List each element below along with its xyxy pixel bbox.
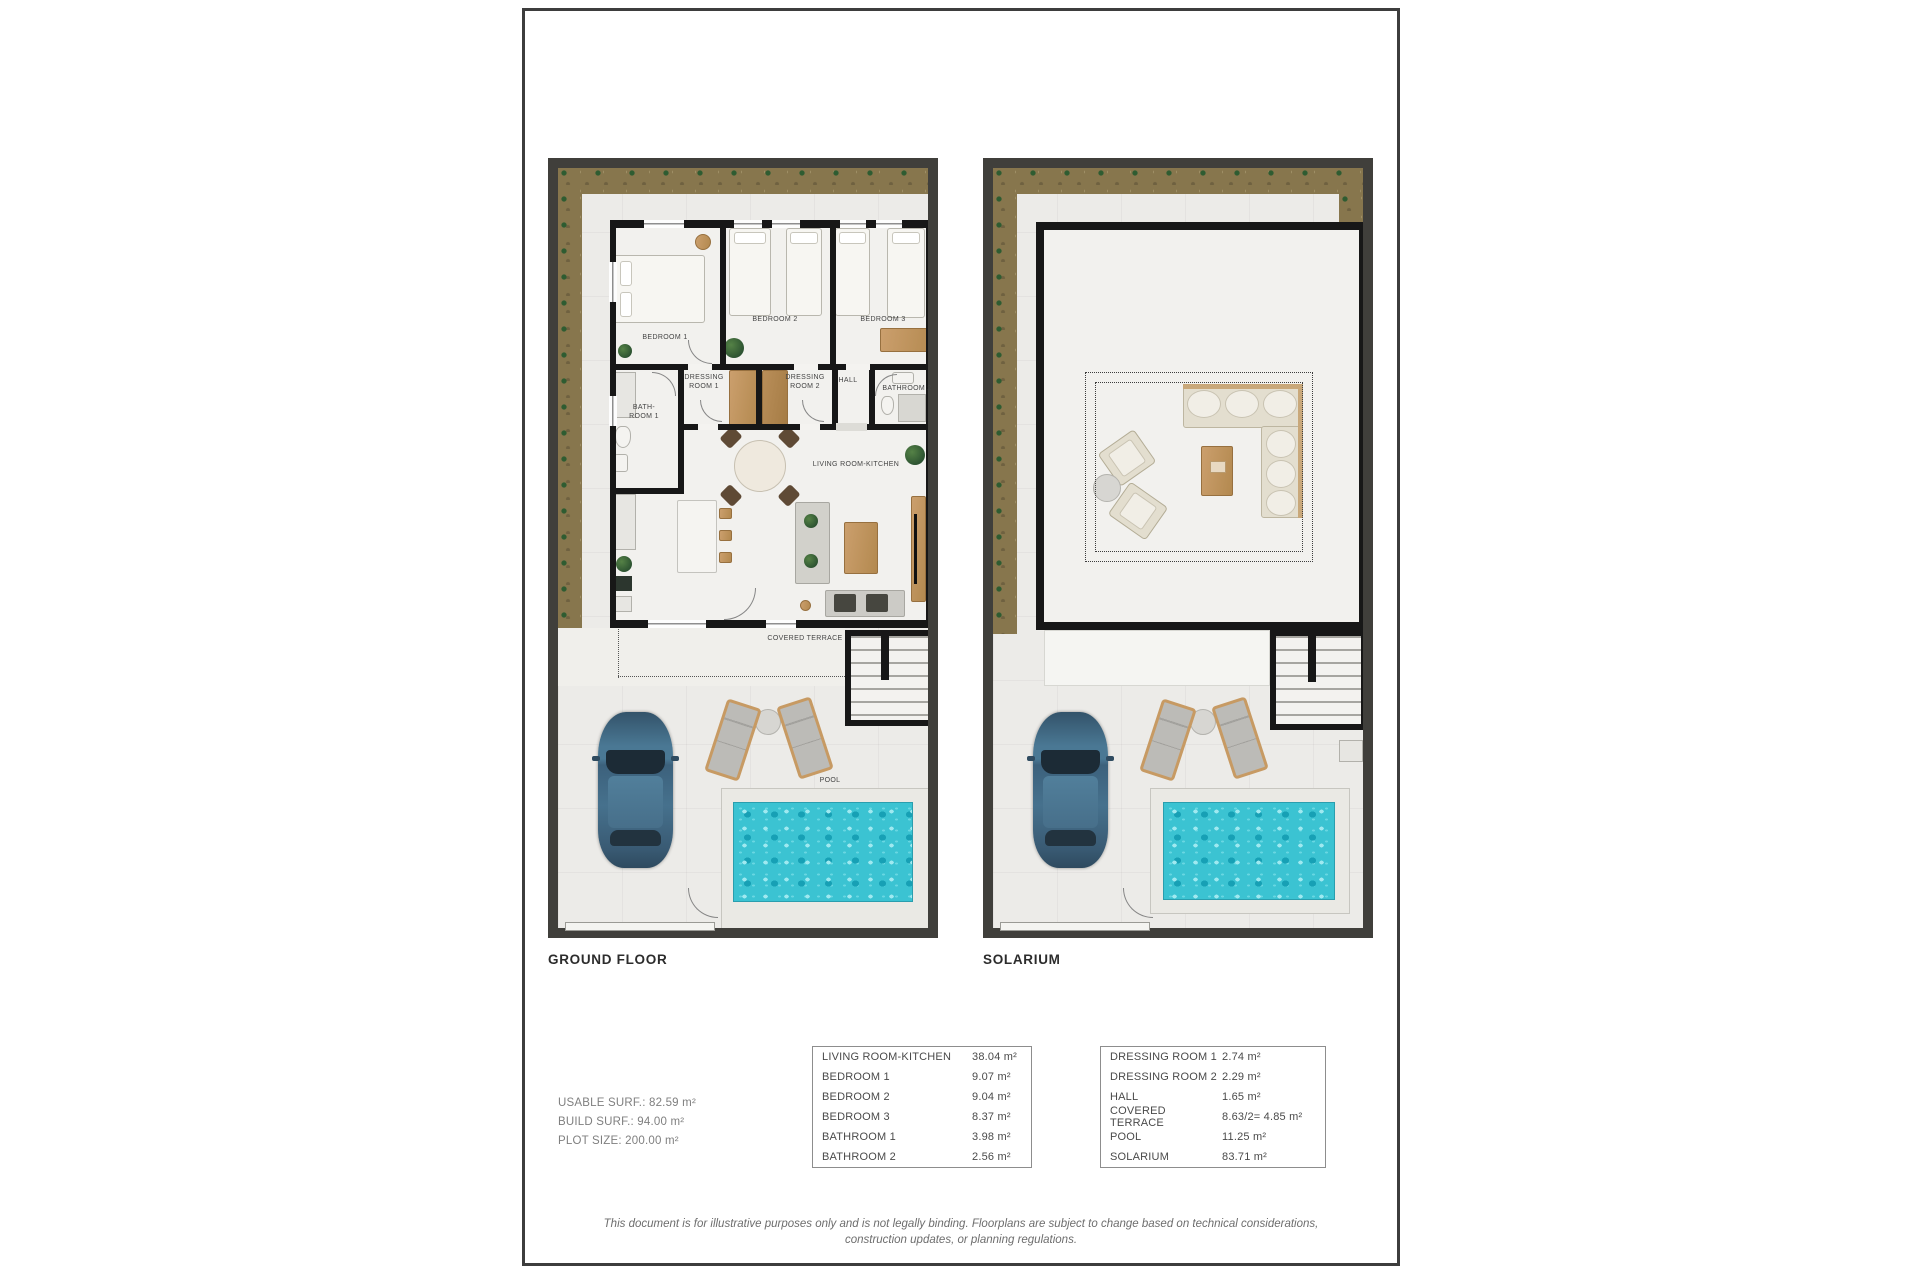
window [772,220,800,228]
pool [1163,802,1335,900]
row-value: 38.04 m² [972,1051,1017,1063]
wall [610,364,938,370]
row-value: 9.07 m² [972,1071,1011,1083]
row-value: 8.37 m² [972,1111,1011,1123]
window [876,220,902,228]
table-row: LIVING ROOM-KITCHEN38.04 m² [813,1047,1031,1067]
door-mat [614,576,632,591]
car-roof [608,776,663,828]
bedroom2-label: BEDROOM 2 [720,316,830,325]
terrace-roof [1044,630,1270,686]
car [1027,710,1114,870]
floorplan-document-canvas: BEDROOM 1 BEDROOM 2 BEDROOM 3 DRESSING R… [0,0,1920,1280]
hall-label: HALL [828,377,868,386]
wall [869,370,875,424]
bedroom3-label: BEDROOM 3 [828,316,938,325]
row-label: BEDROOM 1 [813,1071,972,1083]
wall [1359,230,1367,630]
plant [804,514,818,528]
sliding-door [648,620,706,628]
row-label: BATHROOM 1 [813,1131,972,1143]
window [644,220,684,228]
table-row: BATHROOM 22.56 m² [813,1147,1031,1167]
pillow [734,232,766,244]
car-mirror [592,756,600,761]
kitchen-island [677,500,717,573]
row-label: COVERED TERRACE [1101,1105,1222,1129]
car-mirror [671,756,679,761]
coffee-table [844,522,878,574]
window [840,220,866,228]
cushion [834,594,856,612]
door-opening [794,364,818,370]
car-windshield [606,750,665,774]
solarium-title: SOLARIUM [983,952,1061,967]
table-row: BEDROOM 38.37 m² [813,1107,1031,1127]
door-opening [800,424,820,430]
row-value: 2.29 m² [1222,1071,1261,1083]
table-row: SOLARIUM83.71 m² [1101,1147,1325,1167]
pillow [892,232,920,244]
dining-table [734,440,786,492]
car-rear-window [1045,830,1096,846]
ground-floor-plan: BEDROOM 1 BEDROOM 2 BEDROOM 3 DRESSING R… [548,158,938,938]
table-row: BATHROOM 13.98 m² [813,1127,1031,1147]
stair-divider [1308,636,1316,682]
row-label: DRESSING ROOM 1 [1101,1051,1222,1063]
cushion [866,594,888,612]
toilet [615,426,631,448]
disclaimer-text: This document is for illustrative purpos… [525,1216,1397,1248]
pillow [839,232,866,244]
wall [926,220,938,626]
stairs [845,630,935,726]
document-page: BEDROOM 1 BEDROOM 2 BEDROOM 3 DRESSING R… [522,8,1400,1266]
dressing1-label: DRESSING ROOM 1 [674,374,734,391]
row-value: 9.04 m² [972,1091,1011,1103]
car-mirror [1106,756,1114,761]
boundary-dashed-line [618,620,619,678]
dressing2-label: DRESSING ROOM 2 [775,374,835,391]
window [734,220,762,228]
nightstand [695,234,711,250]
sink [614,454,628,472]
stool [719,530,732,541]
car-roof [1043,776,1098,828]
wall [610,488,684,494]
plot-size: PLOT SIZE: 200.00 m² [558,1132,696,1151]
surface-summary: USABLE SURF.: 82.59 m² BUILD SURF.: 94.0… [558,1094,696,1151]
table-row: BEDROOM 19.07 m² [813,1067,1031,1087]
table-row: COVERED TERRACE8.63/2= 4.85 m² [1101,1107,1325,1127]
row-label: POOL [1101,1131,1222,1143]
entrance-gate [565,922,715,931]
pillow [620,292,632,317]
pillow [620,261,632,286]
row-label: BATHROOM 2 [813,1151,972,1163]
car-mirror [1027,756,1035,761]
row-value: 11.25 m² [1222,1131,1266,1143]
usable-surface: USABLE SURF.: 82.59 m² [558,1094,696,1113]
row-value: 2.74 m² [1222,1051,1261,1063]
boundary-dashed-line [618,676,845,677]
tv [914,514,917,584]
threshold [836,423,867,431]
row-value: 83.71 m² [1222,1151,1267,1163]
garden-strip-right [1339,194,1363,222]
wall [1036,222,1367,230]
bathroom2-label: BATHROOM 2 [872,385,942,394]
stool [719,552,732,563]
stair-divider [881,636,889,680]
garden-strip-top [558,168,928,194]
table-row: DRESSING ROOM 22.29 m² [1101,1067,1325,1087]
wall [756,370,762,424]
covered-terrace-label: COVERED TERRACE [748,635,862,644]
entrance-gate [1000,922,1150,931]
wall [1036,230,1044,630]
build-surface: BUILD SURF.: 94.00 m² [558,1113,696,1132]
row-value: 1.65 m² [1222,1091,1261,1103]
pool-label: POOL [786,777,874,786]
door-opening [688,364,712,370]
row-label: BEDROOM 2 [813,1091,972,1103]
side-table [800,600,811,611]
row-label: BEDROOM 3 [813,1111,972,1123]
pergola-dashed-outline [1095,382,1303,552]
row-label: DRESSING ROOM 2 [1101,1071,1222,1083]
table-row: POOL11.25 m² [1101,1127,1325,1147]
pool [733,802,913,902]
window [609,262,617,302]
pillow [790,232,818,244]
wall [830,220,836,370]
table-row: BEDROOM 29.04 m² [813,1087,1031,1107]
row-label: HALL [1101,1091,1222,1103]
window [766,620,796,628]
car-rear-window [610,830,661,846]
plant [804,554,818,568]
stairs [1270,630,1367,730]
garden-strip-left [558,194,582,628]
wall [720,220,726,370]
plant [724,338,744,358]
table-row: DRESSING ROOM 12.74 m² [1101,1047,1325,1067]
table-row: HALL1.65 m² [1101,1087,1325,1107]
row-value: 8.63/2= 4.85 m² [1222,1111,1302,1123]
toilet [881,396,894,415]
car-windshield [1041,750,1100,774]
car [592,710,679,870]
row-label: SOLARIUM [1101,1151,1222,1163]
plant [618,344,632,358]
solarium-plan [983,158,1373,938]
garden-strip-top [993,168,1363,194]
bathroom1-label: BATH- ROOM 1 [610,404,678,421]
row-value: 3.98 m² [972,1131,1011,1143]
area-table-other: DRESSING ROOM 12.74 m² DRESSING ROOM 22.… [1100,1046,1326,1168]
plant [616,556,632,572]
shower [898,394,926,422]
garden-strip-left [993,194,1017,634]
stool [719,508,732,519]
wall [1036,622,1367,630]
row-label: LIVING ROOM-KITCHEN [813,1051,972,1063]
living-room-label: LIVING ROOM-KITCHEN [788,461,924,470]
ac-unit [1339,740,1363,762]
bedroom1-label: BEDROOM 1 [610,334,720,343]
row-value: 2.56 m² [972,1151,1011,1163]
door-opening [846,364,870,370]
door-opening [698,424,718,430]
ground-floor-title: GROUND FLOOR [548,952,667,967]
area-table-ground: LIVING ROOM-KITCHEN38.04 m² BEDROOM 19.0… [812,1046,1032,1168]
